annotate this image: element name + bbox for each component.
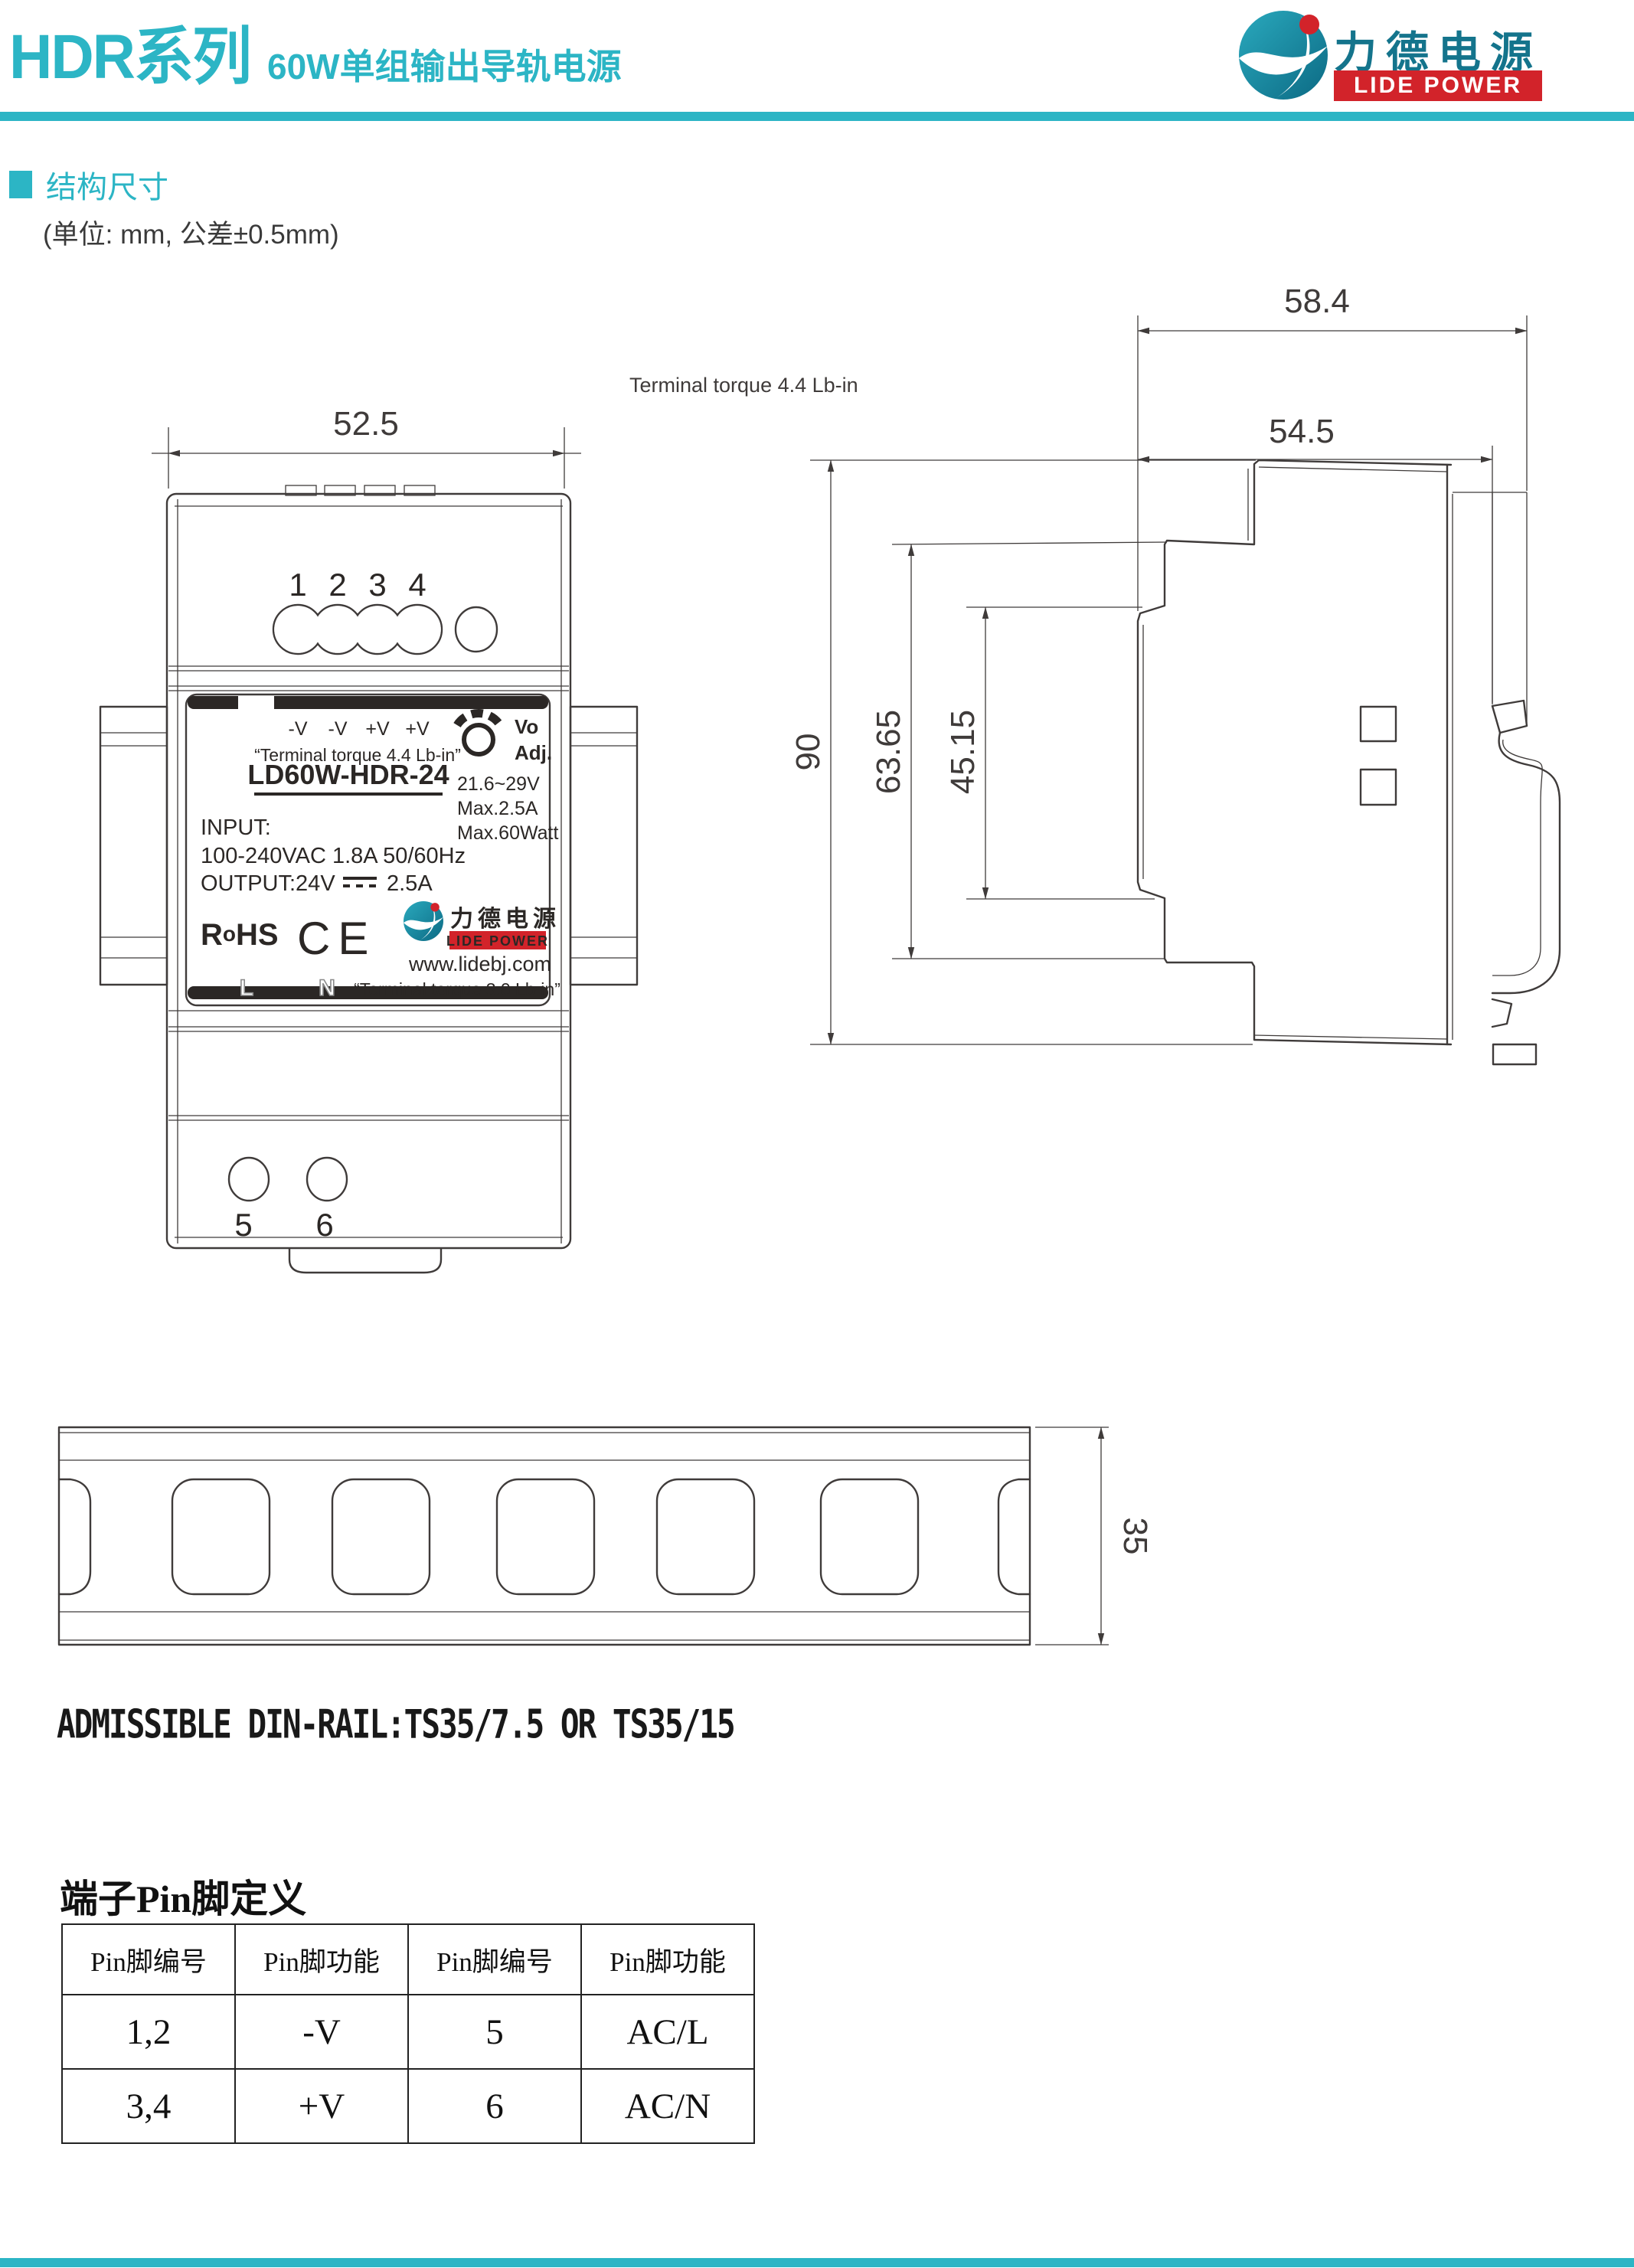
- height-dimension: 90: [789, 460, 1256, 1044]
- svg-text:63.65: 63.65: [870, 710, 907, 794]
- website: www.lidebj.com: [408, 953, 551, 976]
- label-logo-cn: 力德电源: [450, 907, 560, 932]
- pin-table-title: 端子Pin脚定义: [60, 1868, 306, 1923]
- product-label: -V -V +V +V “Terminal torque 4.4 Lb-in” …: [186, 694, 560, 1005]
- pin-cell: AC/N: [581, 2069, 754, 2143]
- pin6-number: 6: [315, 1207, 333, 1243]
- terminal-cutout: [273, 605, 442, 654]
- top-pin-numbers: 1 2 3 4: [289, 567, 426, 603]
- din-rail-note: ADMISSIBLE DIN-RAIL:TS35/7.5 OR TS35/15: [57, 1701, 734, 1747]
- svg-text:35: 35: [1116, 1518, 1154, 1555]
- pin-cell: 5: [408, 1995, 581, 2069]
- rail-height-dimension: 35: [1035, 1427, 1154, 1645]
- bottom-foot: [1493, 1044, 1536, 1064]
- svg-text:-V: -V: [289, 718, 308, 740]
- output-value: OUTPUT:24V: [201, 871, 335, 896]
- din-rail-drawing: 35: [59, 1427, 1154, 1645]
- mid-height-dimension: 63.65: [870, 542, 1167, 959]
- datasheet-page: HDR系列 60W单组输出导轨电源 力德电源 LIDE POWER 结构尺寸 (…: [0, 0, 1634, 2268]
- pin5-hole: [229, 1158, 269, 1201]
- svg-text:-V: -V: [328, 718, 348, 740]
- front-view-drawing: 52.5: [100, 405, 637, 1273]
- svg-text:+V: +V: [405, 718, 430, 740]
- line-terminal-label: L: [240, 976, 253, 1001]
- svg-text:4: 4: [408, 567, 426, 603]
- svg-text:1: 1: [289, 567, 306, 603]
- pin-cell: 3,4: [62, 2069, 235, 2143]
- pin-table-header: Pin脚功能: [581, 1924, 754, 1995]
- svg-text:45.15: 45.15: [944, 710, 982, 794]
- neutral-terminal-label: N: [319, 976, 335, 1001]
- input-label: INPUT:: [201, 815, 271, 840]
- svg-text:54.5: 54.5: [1269, 413, 1335, 450]
- svg-text:21.6~29V: 21.6~29V: [457, 773, 540, 795]
- label-torque-note-bottom: “Terminal torque 3.0 Lb-in”: [354, 979, 560, 999]
- rail-slots: [59, 1479, 1030, 1594]
- pin-table-row: 3,4 +V 6 AC/N: [62, 2069, 754, 2143]
- pin6-hole: [307, 1158, 347, 1201]
- label-terminal-markings: -V -V +V +V: [289, 718, 430, 740]
- dc-symbol-icon: [343, 878, 377, 886]
- svg-text:Max.2.5A: Max.2.5A: [457, 798, 538, 819]
- rail-tab-right: [570, 707, 637, 985]
- pin-cell: AC/L: [581, 1995, 754, 2069]
- label-logo-en: LIDE POWER: [446, 933, 549, 949]
- pin-cell: 1,2: [62, 1995, 235, 2069]
- svg-text:3: 3: [368, 567, 386, 603]
- output-current: 2.5A: [387, 871, 433, 896]
- svg-text:58.4: 58.4: [1284, 283, 1350, 320]
- ce-mark: CE: [297, 913, 376, 964]
- svg-text:2: 2: [328, 567, 346, 603]
- svg-text:52.5: 52.5: [333, 405, 399, 443]
- label-logo: 力德电源 LIDE POWER www.lidebj.com: [404, 901, 560, 976]
- pin-table-row: 1,2 -V 5 AC/L: [62, 1995, 754, 2069]
- pin-definition-table: Pin脚编号 Pin脚功能 Pin脚编号 Pin脚功能 1,2 -V 5 AC/…: [61, 1923, 755, 2144]
- output-specs: 21.6~29V Max.2.5A Max.60Watt: [457, 773, 559, 844]
- pin-table-header: Pin脚编号: [62, 1924, 235, 1995]
- input-value: 100-240VAC 1.8A 50/60Hz: [201, 844, 466, 868]
- pin-table-header-row: Pin脚编号 Pin脚功能 Pin脚编号 Pin脚功能: [62, 1924, 754, 1995]
- footer-rule: [0, 2258, 1634, 2267]
- pin-cell: 6: [408, 2069, 581, 2143]
- pin-cell: -V: [235, 1995, 408, 2069]
- svg-text:+V: +V: [365, 718, 390, 740]
- din-clip: [1453, 492, 1560, 1027]
- pin-table-header: Pin脚编号: [408, 1924, 581, 1995]
- rohs-mark: RoHS: [201, 918, 279, 952]
- side-profile-outline: [1138, 460, 1451, 1044]
- rail-tab-left: [100, 707, 167, 985]
- pin-cell: +V: [235, 2069, 408, 2143]
- pin-table-header: Pin脚功能: [235, 1924, 408, 1995]
- front-height-dimension: 45.15: [944, 607, 1155, 899]
- knob-label-1: Vo: [515, 715, 538, 738]
- terminal-torque-annotation: Terminal torque 4.4 Lb-in: [629, 374, 858, 397]
- bottom-bump: [289, 1249, 441, 1273]
- model-number: LD60W-HDR-24: [247, 759, 449, 790]
- front-width-dimension: 52.5: [152, 405, 581, 489]
- svg-text:90: 90: [789, 734, 827, 771]
- svg-text:Max.60Watt: Max.60Watt: [457, 822, 559, 844]
- body-depth-dimension: 54.5: [1138, 413, 1492, 704]
- side-view-drawing: 58.4 54.5 90 6: [789, 283, 1560, 1064]
- vo-adjust-knob-icon: [457, 713, 500, 754]
- mount-square-1: [1361, 707, 1396, 741]
- pin5-number: 5: [234, 1207, 252, 1243]
- adjust-hole: [456, 607, 497, 652]
- knob-label-2: Adj.: [515, 741, 552, 764]
- mount-square-2: [1361, 770, 1396, 805]
